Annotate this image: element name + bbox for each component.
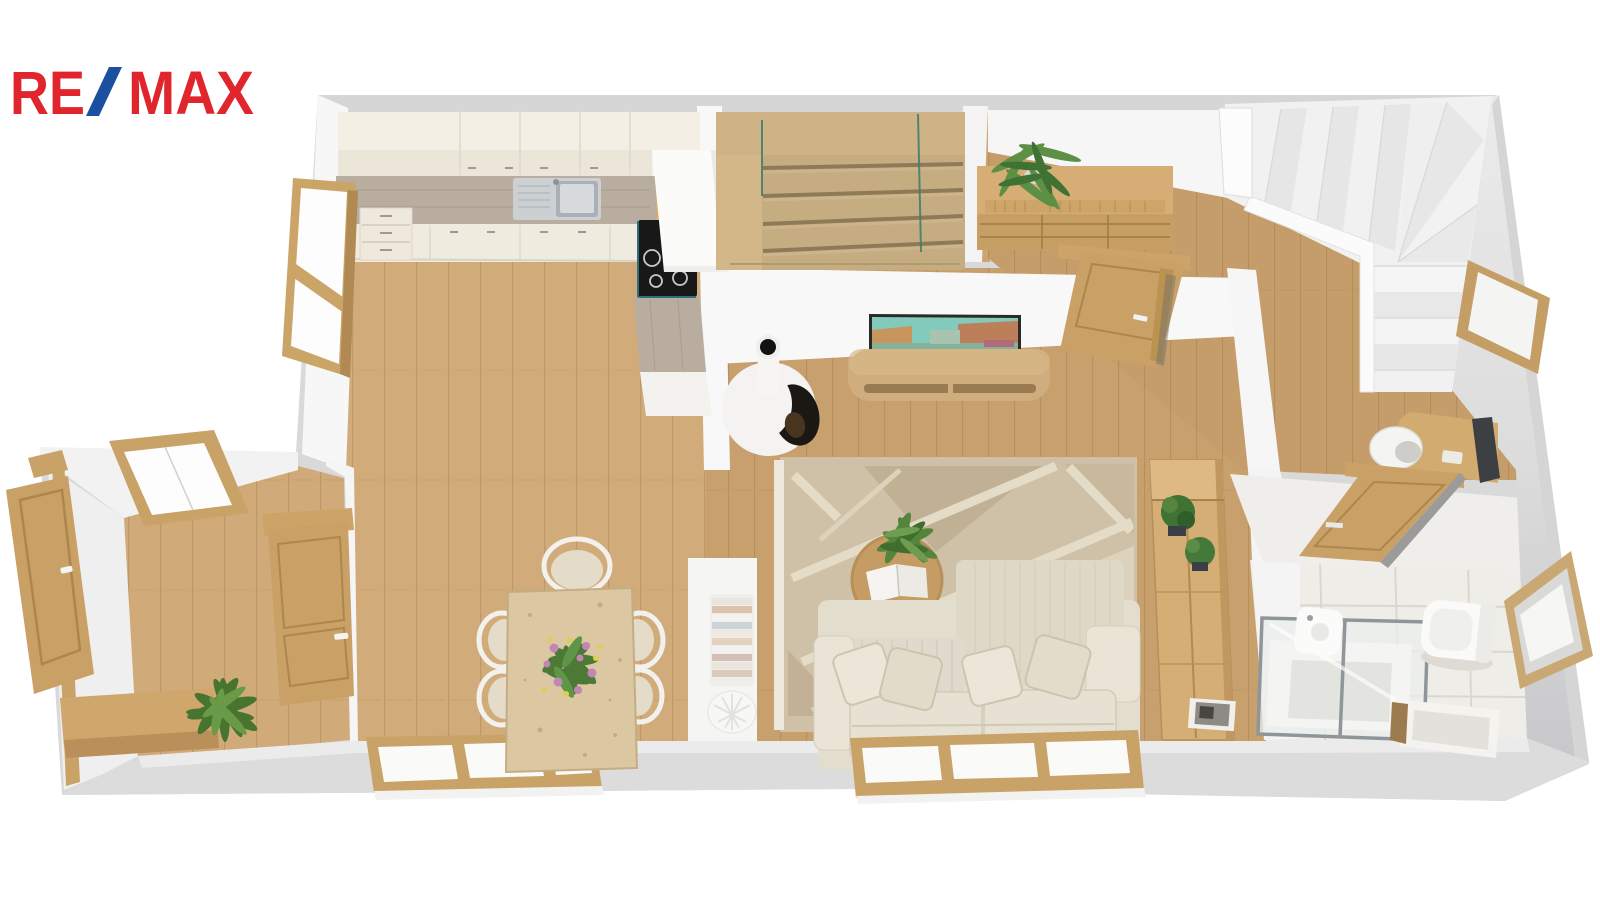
svg-text:RE: RE <box>10 59 85 127</box>
svg-text:MAX: MAX <box>128 59 254 127</box>
